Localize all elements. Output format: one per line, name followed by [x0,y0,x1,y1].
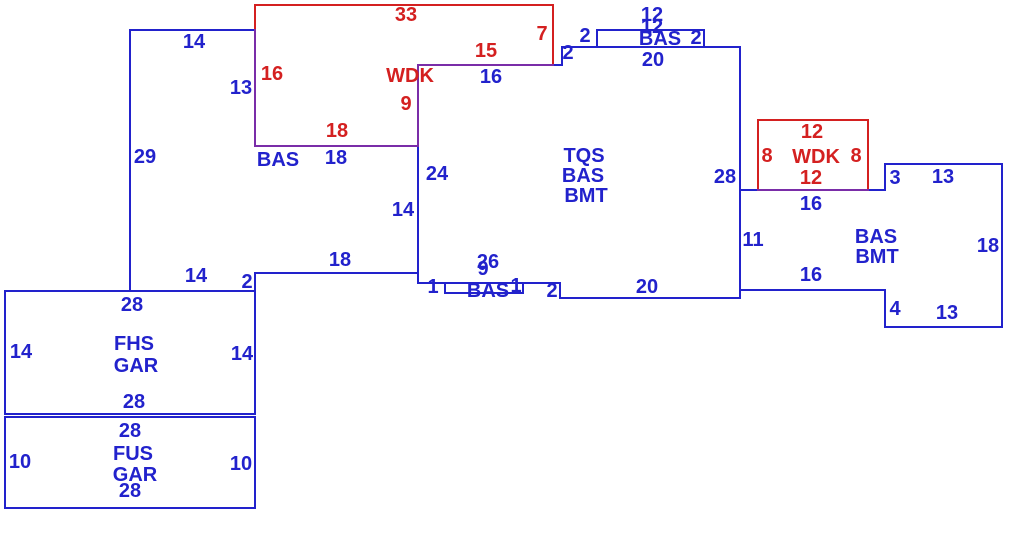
dimension-label: 7 [536,24,547,44]
dimension-label: 14 [231,344,253,364]
dimension-label: 4 [889,299,900,319]
right-bas-step-up-wall [884,163,886,191]
wdk-top-outline-right-wall [552,4,554,66]
dimension-label: 8 [850,146,861,166]
area-type-label: BAS [257,150,299,170]
dimension-label: 12 [800,168,822,188]
area-type-label: WDK [386,66,434,86]
dimension-label: 20 [636,277,658,297]
wdk-top-outline-left-wall [254,4,256,31]
dimension-label: 16 [261,64,283,84]
dimension-label: 2 [579,26,590,46]
dimension-label: 28 [121,295,143,315]
dimension-label: 14 [10,342,32,362]
main-bottom-step-wall [559,282,561,299]
dimension-label: 20 [642,50,664,70]
right-bas-top-wall [884,163,1003,165]
dimension-label: 28 [119,481,141,501]
dimension-label: 2 [690,28,701,48]
area-type-label: FUS [113,444,153,464]
right-bas-bottom-left-wall [739,289,886,291]
dimension-label: 13 [932,167,954,187]
dimension-label: 16 [800,265,822,285]
dimension-label: 16 [480,67,502,87]
dimension-label: 14 [183,32,205,52]
dimension-label: 2 [546,281,557,301]
dimension-label: 1 [427,277,438,297]
wdk-right-rect-right-wall [867,119,869,191]
fhs-gar-right-wall [254,290,256,415]
dimension-label: 29 [134,147,156,167]
dimension-label: 24 [426,164,448,184]
fhs-gar-left-wall [4,290,6,415]
stoop-right-wall [522,282,524,294]
fus-gar-right-wall [254,416,256,509]
right-bas-step-down-wall [884,289,886,328]
dimension-label: 9 [477,259,488,279]
area-type-label: WDK [792,147,840,167]
shared-wdk-right-bottom-wall [757,189,869,191]
dimension-label: 3 [889,168,900,188]
dimension-label: 14 [392,200,414,220]
wdk-right-rect-left-wall [757,119,759,191]
area-type-label: TQS [563,146,604,166]
dimension-label: 9 [400,94,411,114]
area-type-label: BAS [467,281,509,301]
dimension-label: 18 [329,250,351,270]
area-type-label: BAS [639,29,681,49]
fus-gar-bottom-wall [4,507,256,509]
dimension-label: 18 [977,236,999,256]
dimension-label: 12 [801,122,823,142]
floor-plan-sketch: 141329BAS181814233715WDK16189162414TQSBA… [0,0,1030,552]
fhs-gar-top-wall [4,290,256,292]
fus-gar-top-wall [4,416,256,418]
fhs-gar-bottom-wall [4,413,256,415]
dimension-label: 2 [562,43,573,63]
right-bas-bottom-wall [884,326,1003,328]
area-type-label: BMT [855,247,898,267]
dimension-label: 33 [395,5,417,25]
left-bas-step-wall [254,272,256,292]
area-type-label: BMT [564,186,607,206]
area-type-label: BAS [562,166,604,186]
main-right-wall [739,46,741,299]
dimension-label: 10 [230,454,252,474]
right-bas-right-wall [1001,163,1003,328]
dimension-label: 16 [800,194,822,214]
dimension-label: 1 [510,276,521,296]
dimension-label: 11 [742,230,763,250]
dimension-label: 8 [761,146,772,166]
fus-gar-left-wall [4,416,6,509]
dimension-label: 10 [9,452,31,472]
dimension-label: 14 [185,266,207,286]
left-bas-bottom-wall [254,272,419,274]
dimension-label: 28 [714,167,736,187]
dimension-label: 2 [241,272,252,292]
shared-wdk-bas-left-wall [254,29,256,147]
area-type-label: GAR [114,356,158,376]
dimension-label: 13 [230,78,252,98]
dimension-label: 15 [475,41,497,61]
top-bumpout-right-wall [703,29,705,48]
dimension-label: 13 [936,303,958,323]
dimension-label: 18 [326,121,348,141]
dimension-label: 18 [325,148,347,168]
area-type-label: BAS [855,227,897,247]
dimension-label: 28 [123,392,145,412]
area-type-label: FHS [114,334,154,354]
top-bumpout-left-wall [596,29,598,48]
left-bas-left-wall [129,29,131,292]
dimension-label: 28 [119,421,141,441]
